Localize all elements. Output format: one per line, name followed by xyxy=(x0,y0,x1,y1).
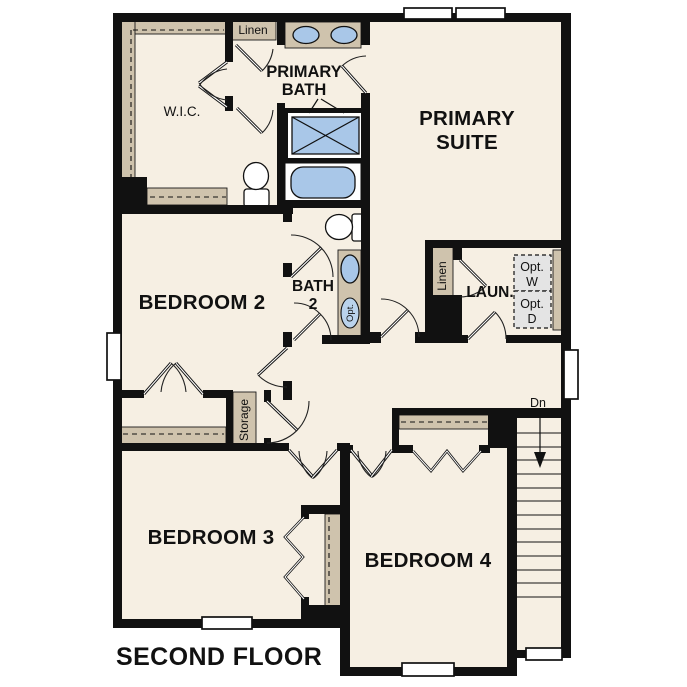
bedroom2-label: BEDROOM 2 xyxy=(139,291,266,314)
optional-dryer-label-2: D xyxy=(527,312,536,326)
primary-bath-label-2: BATH xyxy=(282,81,327,99)
window-icon xyxy=(456,8,505,19)
vanity-sink-icon xyxy=(331,27,357,44)
laundry-linen-label: Linen xyxy=(435,261,449,290)
bath2-label-2: 2 xyxy=(309,296,318,313)
window-icon xyxy=(402,663,454,676)
primary-suite-label-2: SUITE xyxy=(436,131,498,154)
window-icon xyxy=(526,648,562,660)
optional-sink-label: Opt. xyxy=(345,304,356,322)
primary-suite-label-1: PRIMARY xyxy=(419,107,515,130)
toilet-icon xyxy=(244,189,269,207)
stairs-dn-label: Dn xyxy=(530,396,546,410)
primary-bath-label-1: PRIMARY xyxy=(266,63,341,81)
wic-shelf-top xyxy=(121,21,227,34)
window-icon xyxy=(107,333,121,380)
bath2-label-1: BATH xyxy=(292,278,334,295)
window-icon xyxy=(404,8,452,19)
wic-shelf-left xyxy=(121,21,135,183)
optional-dryer-label-1: Opt. xyxy=(520,297,544,311)
sink-icon xyxy=(341,255,359,283)
linen-top-label: Linen xyxy=(238,23,267,37)
floor-title: SECOND FLOOR xyxy=(116,643,322,671)
optional-washer-label-2: W xyxy=(526,275,538,289)
optional-washer-label-1: Opt. xyxy=(520,260,544,274)
wic-label: W.I.C. xyxy=(164,104,201,119)
storage-label: Storage xyxy=(237,399,251,441)
floor-plan-page: Linen PRIMARY BATH W.I.C. PRIMARY SUITE … xyxy=(0,0,687,687)
laundry-label: LAUN. xyxy=(466,284,513,301)
bathtub-icon xyxy=(291,167,355,198)
window-icon xyxy=(564,350,578,399)
bedroom4-label: BEDROOM 4 xyxy=(365,549,492,572)
bedroom3-label: BEDROOM 3 xyxy=(148,526,275,549)
vanity-sink-icon xyxy=(293,27,319,44)
window-icon xyxy=(202,617,252,629)
floor-plan: Linen PRIMARY BATH W.I.C. PRIMARY SUITE … xyxy=(0,0,687,687)
